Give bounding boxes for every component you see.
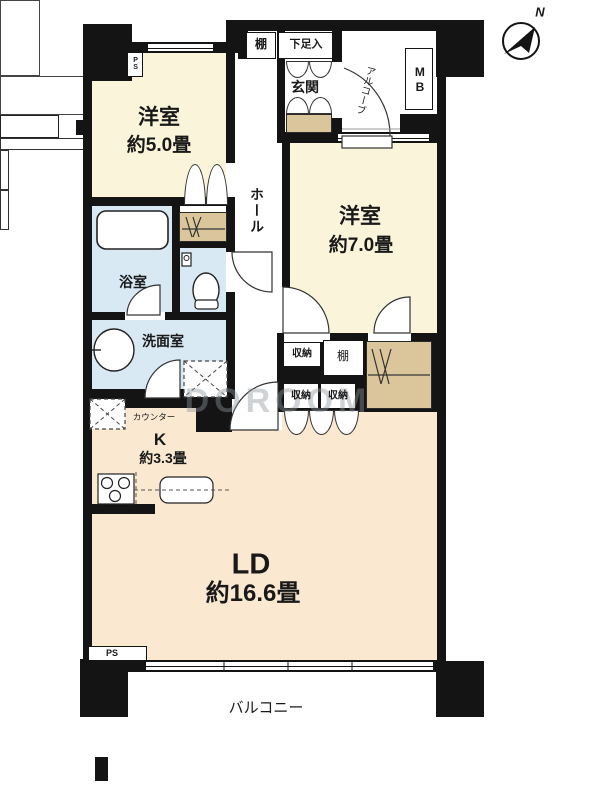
hanger-pipe xyxy=(182,217,225,237)
storage2-label: 収納 xyxy=(291,390,311,402)
door-arc-toilet xyxy=(232,252,272,292)
ld-size: 約16.6畳 xyxy=(206,580,301,608)
bedroom7-name: 洋室 xyxy=(339,205,381,229)
ps-top-label: PS xyxy=(131,57,139,71)
hall-label: ホール xyxy=(249,187,265,235)
toilet-tank xyxy=(195,300,218,309)
balcony-label: バルコニー xyxy=(229,699,304,716)
storage1-label: 収納 xyxy=(292,348,312,360)
north-label: N xyxy=(535,6,544,21)
kitchen-name: K xyxy=(154,430,166,450)
door-arc-bedroom7-entry xyxy=(283,287,329,333)
meter-box-label: MB xyxy=(412,65,426,95)
storage3-label: 収納 xyxy=(328,390,348,402)
bedroom5-name: 洋室 xyxy=(138,106,180,130)
compass xyxy=(503,23,539,59)
washroom-label: 洗面室 xyxy=(142,333,184,349)
ps-bottom-label: PS xyxy=(106,648,118,658)
counter-label: カウンター xyxy=(133,413,176,423)
kitchen-size: 約3.3畳 xyxy=(139,450,186,466)
bedroom7-size: 約7.0畳 xyxy=(329,235,393,257)
shoe-cupboard-label: 下足入 xyxy=(290,39,323,52)
bathroom-label: 浴室 xyxy=(119,274,147,290)
ld-name: LD xyxy=(232,548,271,581)
door-arc-bedroom7-closet xyxy=(374,297,410,333)
shelf-top-label: 棚 xyxy=(255,38,267,52)
hanger-pipe xyxy=(368,349,430,384)
fridge-space xyxy=(90,399,125,429)
compass-needle xyxy=(504,27,535,54)
shelf-mid-label: 棚 xyxy=(337,350,349,364)
entrance-door-leaf xyxy=(342,136,392,148)
bedroom5-size: 約5.0畳 xyxy=(127,135,191,157)
floorplan-canvas: 洋室 約5.0畳 洋室 約7.0畳 LD 約16.6畳 K 約3.3畳 浴室 洗… xyxy=(0,0,600,800)
bathtub xyxy=(97,211,168,249)
window-tick xyxy=(224,662,352,670)
watermark: DOROOM xyxy=(158,382,398,421)
entrance-label: 玄関 xyxy=(291,79,319,95)
toilet-paper-holder xyxy=(182,253,191,266)
